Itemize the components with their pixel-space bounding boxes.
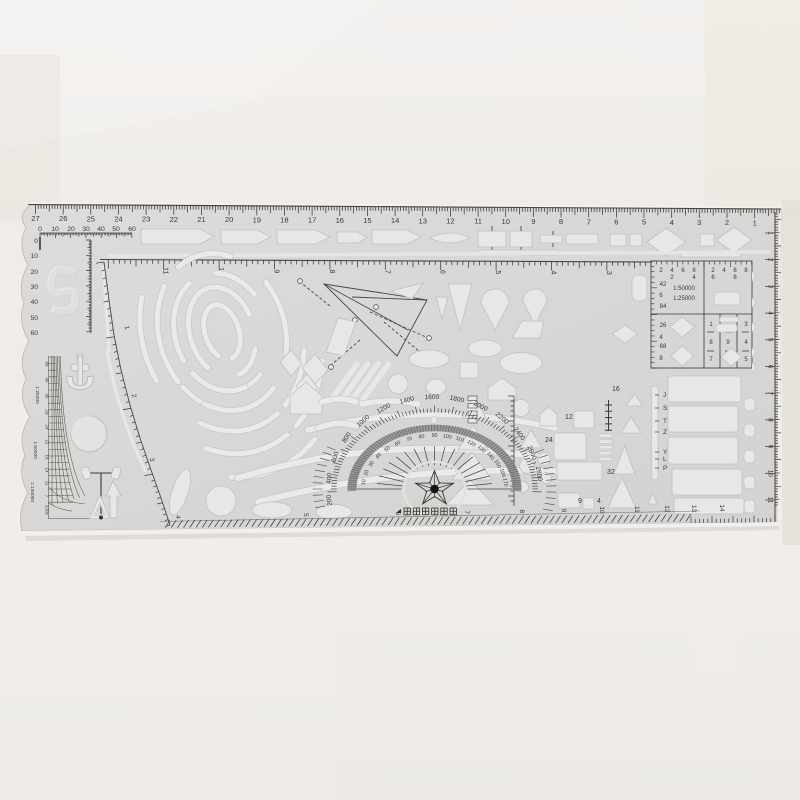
svg-text:68: 68 [660,344,667,350]
svg-text:25: 25 [87,214,95,223]
svg-text:0: 0 [34,238,38,245]
svg-text:J: J [663,392,666,399]
svg-text:1:50000: 1:50000 [32,441,38,459]
svg-text:11: 11 [633,506,640,513]
svg-text:9: 9 [578,498,582,505]
svg-text:26: 26 [59,214,67,223]
svg-text:19: 19 [253,215,261,224]
svg-text:42: 42 [660,282,667,288]
svg-text:Z: Z [663,429,667,436]
svg-text:10: 10 [598,506,605,514]
svg-text:90: 90 [432,433,438,439]
svg-text:1600: 1600 [424,394,439,401]
svg-text:11: 11 [45,481,50,486]
svg-text:24: 24 [545,437,553,444]
svg-text:7: 7 [383,270,390,274]
svg-text:36: 36 [45,394,50,399]
svg-text:9: 9 [273,269,280,273]
svg-text:23: 23 [142,215,150,224]
svg-text:3: 3 [697,218,701,227]
svg-text:Y: Y [663,449,668,456]
svg-text:5: 5 [494,270,501,274]
svg-text:1:25000: 1:25000 [673,296,695,302]
svg-text:14: 14 [45,468,50,473]
svg-text:30: 30 [30,284,38,291]
svg-text:14: 14 [718,504,725,512]
svg-text:10: 10 [361,479,368,486]
svg-text:1:50000: 1:50000 [673,286,695,292]
svg-text:6: 6 [394,512,401,516]
svg-text:6: 6 [439,270,446,274]
svg-text:400: 400 [326,472,334,484]
svg-text:11: 11 [474,217,482,226]
svg-text:60: 60 [30,330,38,337]
svg-text:0: 0 [38,226,42,233]
svg-text:20: 20 [30,269,38,276]
svg-text:29: 29 [45,410,50,415]
svg-text:12: 12 [663,505,670,513]
svg-text:8: 8 [559,217,563,226]
svg-text:9: 9 [531,217,535,226]
svg-text:5: 5 [642,218,646,227]
svg-text:12: 12 [446,217,454,226]
svg-text:30: 30 [82,226,90,233]
svg-text:20: 20 [225,215,233,224]
svg-text:4: 4 [174,515,181,519]
svg-text:12: 12 [565,414,573,421]
svg-text:58: 58 [45,362,50,367]
svg-text:24: 24 [45,425,50,430]
svg-text:2: 2 [725,218,729,227]
svg-text:14: 14 [391,216,399,225]
svg-text:13: 13 [418,216,426,225]
svg-text:20: 20 [67,226,75,233]
svg-text:24: 24 [114,215,122,224]
svg-text:22: 22 [170,215,178,224]
svg-text:32: 32 [607,469,615,476]
svg-text:16: 16 [336,216,344,225]
svg-text:9: 9 [560,509,567,513]
svg-text:10: 10 [30,253,38,260]
svg-text:40: 40 [30,299,38,306]
svg-text:11: 11 [162,267,169,274]
svg-text:60: 60 [128,226,136,233]
svg-text:4: 4 [550,271,557,275]
svg-text:200: 200 [326,494,334,506]
svg-text:10: 10 [501,217,509,226]
svg-text:16: 16 [612,386,620,393]
svg-text:1:100000: 1:100000 [29,482,35,502]
svg-text:L: L [663,456,667,463]
svg-text:40: 40 [97,226,105,233]
svg-text:21: 21 [197,215,205,224]
svg-text:6: 6 [614,218,618,227]
svg-text:80: 80 [418,434,425,441]
svg-text:170: 170 [501,478,508,487]
svg-text:26: 26 [660,323,667,329]
svg-text:T: T [663,418,667,425]
svg-text:3.5%: 3.5% [45,505,50,515]
svg-text:13: 13 [690,505,697,513]
svg-text:4: 4 [670,218,674,227]
svg-text:7: 7 [463,510,470,514]
svg-text:P: P [663,465,667,472]
svg-text:5: 5 [302,513,309,517]
svg-text:1:25000: 1:25000 [34,386,40,404]
svg-text:50: 50 [112,226,120,233]
svg-text:7: 7 [587,217,591,226]
svg-text:8: 8 [518,509,525,513]
svg-text:18: 18 [280,216,288,225]
svg-text:3: 3 [605,271,612,275]
svg-text:21: 21 [45,440,50,445]
svg-text:S: S [663,405,668,412]
svg-text:15: 15 [363,216,371,225]
svg-text:4: 4 [597,498,601,505]
svg-text:8: 8 [328,270,335,274]
svg-text:45: 45 [45,378,50,383]
svg-text:18: 18 [45,455,50,460]
svg-text:50: 50 [30,315,38,322]
svg-text:1: 1 [753,218,757,227]
svg-text:84: 84 [660,304,667,310]
svg-text:17: 17 [308,216,316,225]
svg-text:27: 27 [31,214,39,223]
svg-text:10: 10 [51,226,59,233]
